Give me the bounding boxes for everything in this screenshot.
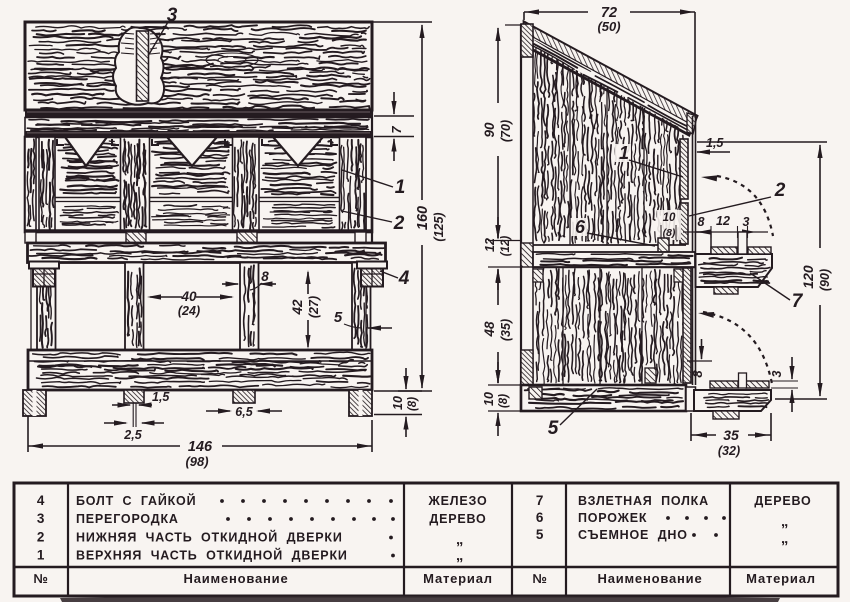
svg-text:6: 6: [536, 510, 544, 525]
svg-text:120: 120: [800, 265, 816, 289]
svg-text:90: 90: [482, 122, 497, 138]
svg-text:(8): (8): [663, 227, 676, 239]
svg-text:3: 3: [770, 370, 784, 377]
svg-text:(125): (125): [432, 212, 446, 241]
svg-text:2: 2: [393, 213, 405, 234]
svg-text:3: 3: [743, 215, 750, 229]
svg-text:№: №: [33, 571, 48, 586]
svg-text:12: 12: [483, 238, 497, 252]
svg-text:8: 8: [698, 215, 705, 229]
svg-text:1,5: 1,5: [706, 136, 724, 150]
svg-text:1,5: 1,5: [152, 390, 170, 404]
svg-text:7: 7: [389, 126, 404, 134]
svg-text:СЪЕМНОЕ ДНО: СЪЕМНОЕ ДНО: [578, 528, 688, 542]
svg-text:1: 1: [619, 143, 629, 163]
svg-text:(90): (90): [818, 269, 832, 291]
svg-text:4: 4: [37, 493, 45, 508]
svg-text:ВЕРХНЯЯ ЧАСТЬ ОТКИДНОЙ ДВЕР: ВЕРХНЯЯ ЧАСТЬ ОТКИДНОЙ ДВЕРКИ: [76, 548, 348, 563]
svg-text:Наименование: Наименование: [598, 571, 703, 586]
svg-text:„: „: [456, 547, 464, 564]
svg-text:Материал: Материал: [423, 571, 493, 586]
svg-text:8: 8: [261, 269, 269, 284]
svg-text:(27): (27): [307, 296, 321, 318]
svg-text:3: 3: [167, 5, 178, 26]
svg-text:ДЕРЕВО: ДЕРЕВО: [754, 494, 811, 508]
svg-text:Материал: Материал: [746, 571, 816, 586]
svg-text:6,5: 6,5: [235, 405, 253, 419]
svg-text:1: 1: [395, 177, 406, 198]
svg-text:„: „: [781, 513, 789, 530]
svg-text:3: 3: [37, 511, 45, 526]
svg-text:НИЖНЯЯ ЧАСТЬ ОТКИДНОЙ ДВЕРК: НИЖНЯЯ ЧАСТЬ ОТКИДНОЙ ДВЕРКИ: [76, 530, 343, 545]
svg-text:(12): (12): [500, 236, 512, 257]
svg-text:5: 5: [548, 418, 559, 439]
svg-text:(8): (8): [498, 394, 510, 408]
svg-text:2: 2: [774, 180, 786, 201]
svg-text:(24): (24): [178, 304, 200, 318]
svg-text:БОЛТ С ГАЙКОЙ: БОЛТ С ГАЙКОЙ: [76, 493, 196, 508]
svg-text:48: 48: [482, 321, 497, 338]
svg-text:10: 10: [663, 212, 676, 224]
svg-text:4: 4: [398, 268, 410, 289]
svg-text:146: 146: [188, 439, 213, 455]
svg-text:40: 40: [180, 289, 197, 304]
svg-text:12: 12: [716, 214, 730, 228]
svg-text:10: 10: [482, 392, 496, 406]
svg-text:Наименование: Наименование: [184, 571, 289, 586]
svg-text:10: 10: [391, 396, 405, 410]
svg-text:5: 5: [334, 309, 343, 326]
svg-text:ПОРОЖЕК: ПОРОЖЕК: [578, 511, 647, 525]
svg-text:2: 2: [37, 530, 45, 545]
svg-text:(98): (98): [185, 454, 208, 469]
svg-text:(32): (32): [718, 444, 740, 458]
svg-text:ДЕРЕВО: ДЕРЕВО: [429, 512, 486, 526]
svg-text:1: 1: [37, 548, 45, 563]
svg-text:ВЗЛЕТНАЯ ПОЛКА: ВЗЛЕТНАЯ ПОЛКА: [578, 494, 709, 508]
svg-text:42: 42: [290, 299, 305, 316]
svg-text:7: 7: [792, 291, 804, 312]
svg-text:35: 35: [723, 427, 739, 443]
svg-text:„: „: [456, 531, 464, 548]
svg-text:№: №: [532, 571, 547, 586]
svg-text:(70): (70): [499, 120, 513, 142]
svg-text:(8): (8): [407, 397, 419, 411]
svg-text:7: 7: [536, 493, 544, 508]
svg-text:2,5: 2,5: [123, 428, 142, 442]
svg-text:(50): (50): [597, 19, 620, 34]
svg-text:5: 5: [536, 527, 544, 542]
svg-text:6: 6: [575, 217, 586, 237]
svg-text:ПЕРЕГОРОДКА: ПЕРЕГОРОДКА: [76, 512, 179, 526]
svg-text:„: „: [781, 530, 789, 547]
svg-text:(35): (35): [499, 319, 513, 341]
svg-text:ЖЕЛЕЗО: ЖЕЛЕЗО: [428, 494, 488, 508]
svg-text:8: 8: [690, 370, 705, 378]
svg-text:160: 160: [415, 206, 431, 230]
